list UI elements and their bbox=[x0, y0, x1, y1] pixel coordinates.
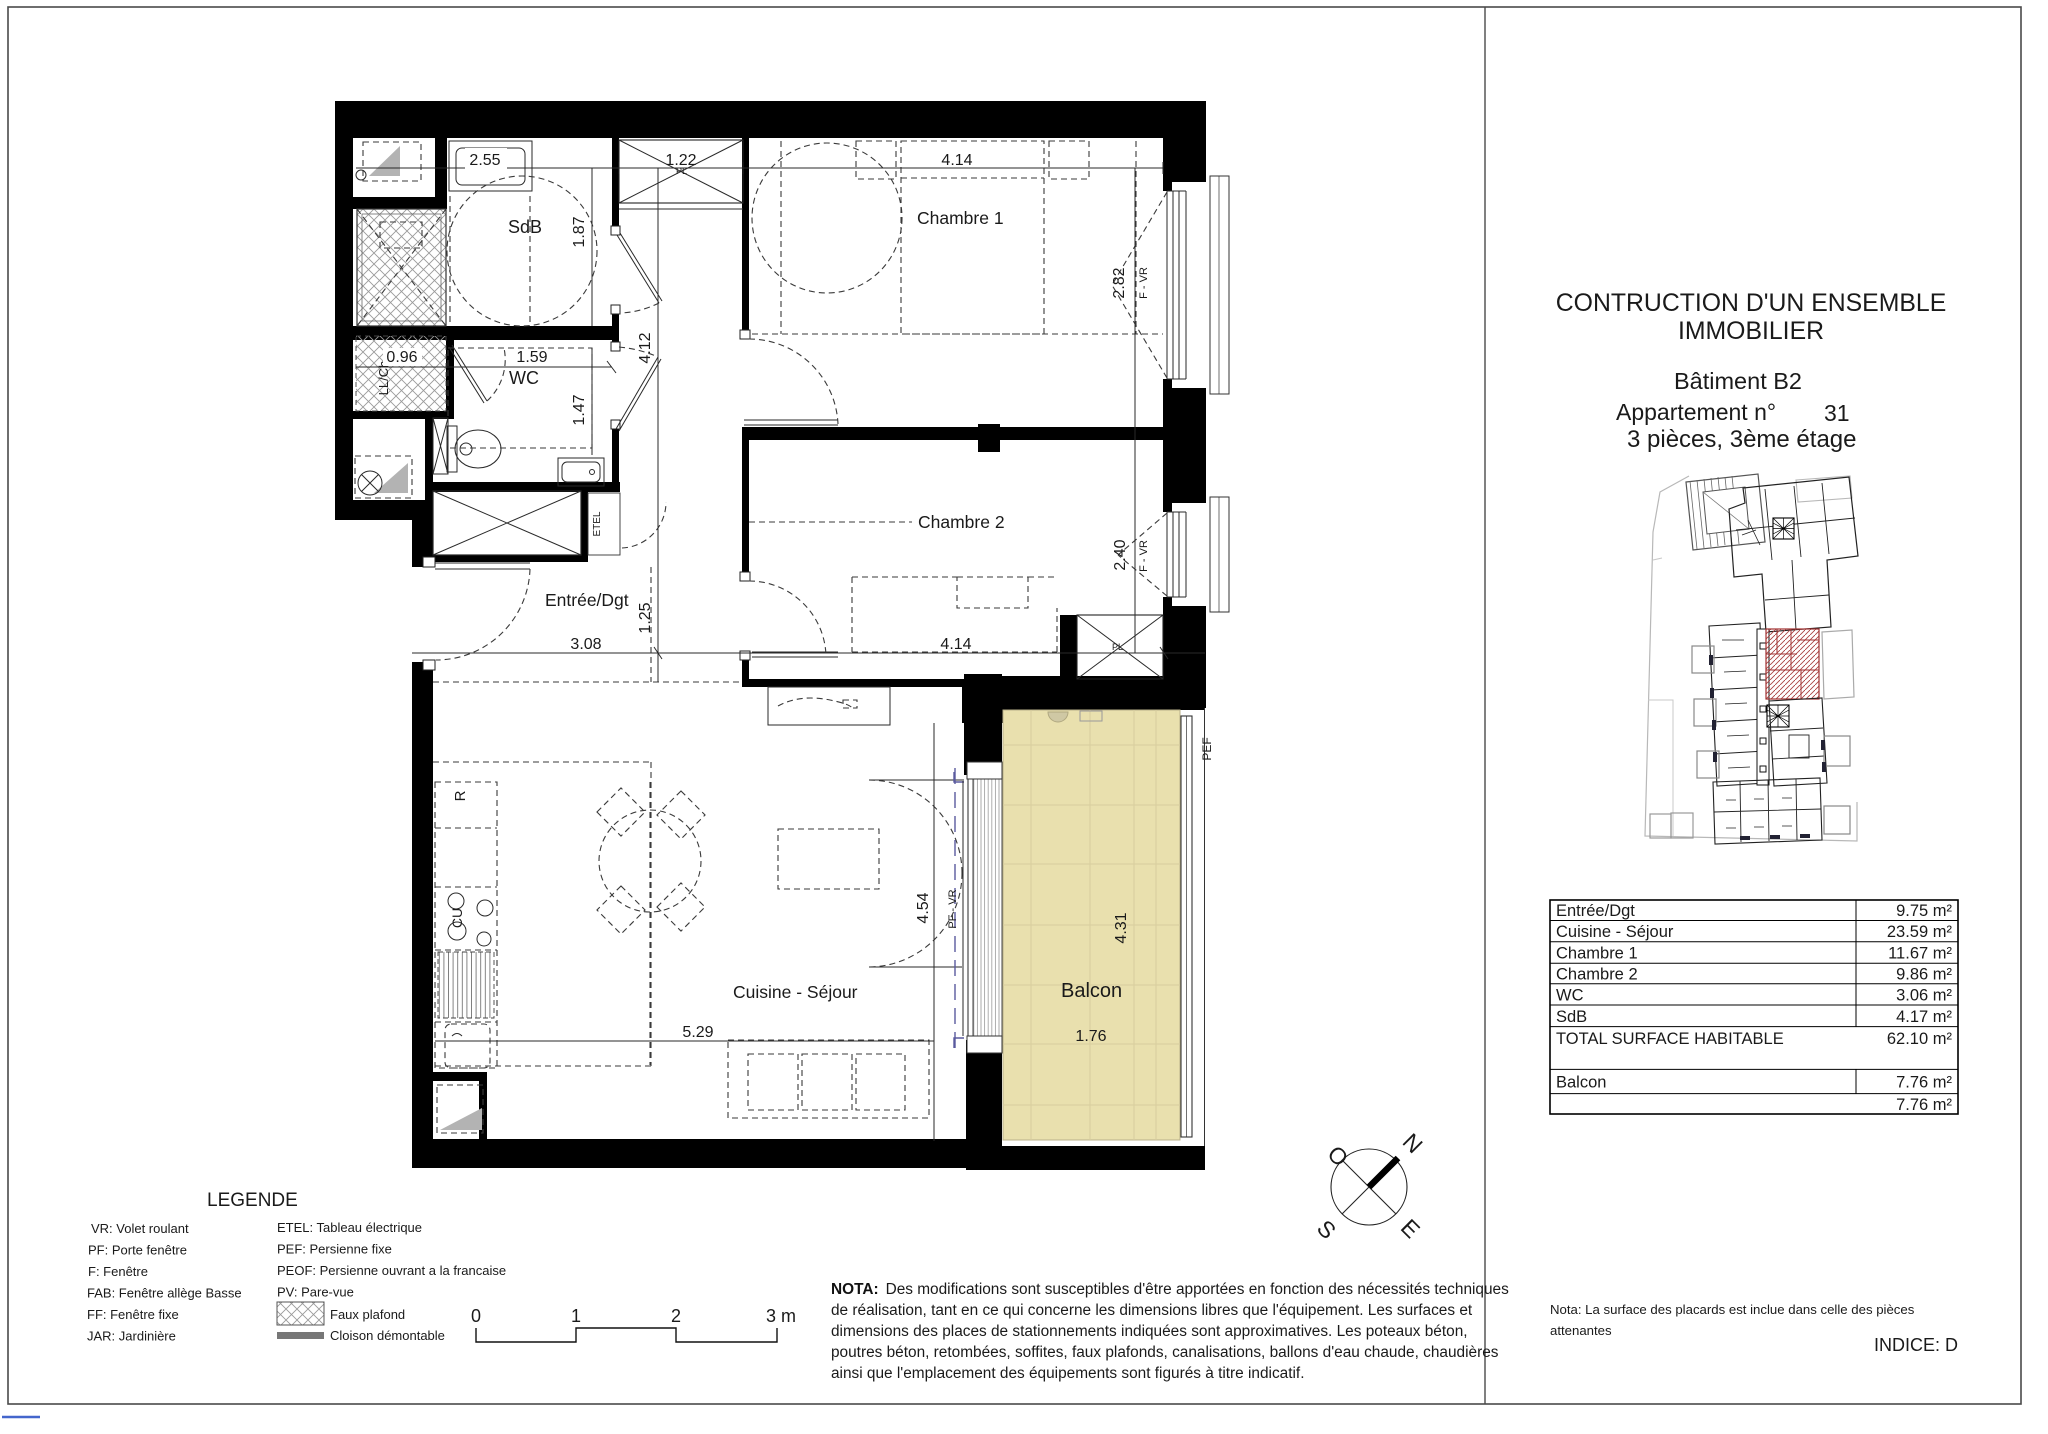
svg-text:1.25: 1.25 bbox=[637, 602, 654, 633]
svg-text:Balcon: Balcon bbox=[1556, 1074, 1606, 1092]
svg-text:de réalisation, tant en ce qui: de réalisation, tant en ce qui concerne … bbox=[831, 1302, 1473, 1319]
svg-text:NOTA:Des modifications sont su: NOTA:Des modifications sont susceptibles… bbox=[831, 1281, 1509, 1298]
svg-text:3 m: 3 m bbox=[766, 1306, 796, 1326]
svg-text:CONTRUCTION D'UN ENSEMBLE: CONTRUCTION D'UN ENSEMBLE bbox=[1556, 290, 1947, 317]
svg-text:Chambre 1: Chambre 1 bbox=[1556, 945, 1638, 963]
svg-text:TOTAL SURFACE HABITABLE: TOTAL SURFACE HABITABLE bbox=[1556, 1030, 1784, 1048]
svg-text:ainsi que l'emplacement des éq: ainsi que l'emplacement des équipements … bbox=[831, 1365, 1304, 1382]
svg-text:SdB: SdB bbox=[1556, 1008, 1587, 1026]
svg-text:1.47: 1.47 bbox=[571, 394, 588, 425]
svg-text:Entrée/Dgt: Entrée/Dgt bbox=[545, 590, 629, 610]
svg-text:PEOF: Persienne ouvrant a la f: PEOF: Persienne ouvrant a la francaise bbox=[277, 1263, 506, 1278]
svg-text:Entrée/Dgt: Entrée/Dgt bbox=[1556, 902, 1635, 920]
svg-text:4.14: 4.14 bbox=[940, 636, 971, 653]
svg-text:4.54: 4.54 bbox=[915, 892, 932, 923]
svg-text:3.06 m²: 3.06 m² bbox=[1896, 986, 1952, 1004]
svg-text:0: 0 bbox=[471, 1306, 481, 1326]
svg-text:1.87: 1.87 bbox=[571, 216, 588, 247]
svg-text:F - VR: F - VR bbox=[1138, 540, 1150, 572]
svg-text:9.86 m²: 9.86 m² bbox=[1896, 966, 1952, 984]
svg-text:poutres béton, retombées, soff: poutres béton, retombées, soffites, faux… bbox=[831, 1344, 1499, 1361]
svg-text:WC: WC bbox=[1556, 986, 1584, 1004]
svg-text:1: 1 bbox=[571, 1306, 581, 1326]
svg-text:9.75 m²: 9.75 m² bbox=[1896, 902, 1952, 920]
svg-text:62.10 m²: 62.10 m² bbox=[1887, 1030, 1953, 1048]
svg-text:2.40: 2.40 bbox=[1112, 539, 1129, 570]
svg-text:4.14: 4.14 bbox=[941, 152, 972, 169]
svg-text:Appartement n°: Appartement n° bbox=[1616, 399, 1776, 425]
svg-text:Balcon: Balcon bbox=[1061, 980, 1122, 1002]
svg-text:Chambre 2: Chambre 2 bbox=[1556, 966, 1638, 984]
svg-text:Nota: La surface des placards: Nota: La surface des placards est inclue… bbox=[1550, 1302, 1915, 1317]
svg-text:11.67 m²: 11.67 m² bbox=[1888, 945, 1952, 963]
svg-text:ETEL: Tableau électrique: ETEL: Tableau électrique bbox=[277, 1220, 422, 1235]
svg-text:1.59: 1.59 bbox=[516, 349, 547, 366]
svg-text:PEF: Persienne fixe: PEF: Persienne fixe bbox=[277, 1242, 392, 1257]
svg-text:7.76 m²: 7.76 m² bbox=[1896, 1096, 1952, 1114]
svg-text:WC: WC bbox=[509, 368, 539, 388]
svg-text:3 pièces, 3ème étage: 3 pièces, 3ème étage bbox=[1627, 426, 1857, 453]
svg-text:PV: Pare-vue: PV: Pare-vue bbox=[277, 1285, 354, 1300]
svg-text:Chambre 1: Chambre 1 bbox=[917, 208, 1004, 228]
svg-text:FF: Fenêtre fixe: FF: Fenêtre fixe bbox=[87, 1307, 179, 1322]
svg-text:1.76: 1.76 bbox=[1075, 1028, 1106, 1045]
svg-text:2.55: 2.55 bbox=[469, 152, 500, 169]
svg-text:Cuisine - Séjour: Cuisine - Séjour bbox=[1556, 923, 1674, 941]
svg-text:JAR: Jardinière: JAR: Jardinière bbox=[87, 1329, 176, 1344]
svg-text:Cuisine - Séjour: Cuisine - Séjour bbox=[733, 982, 858, 1002]
svg-text:PF - VR: PF - VR bbox=[947, 889, 959, 928]
svg-text:Bâtiment B2: Bâtiment B2 bbox=[1674, 368, 1802, 394]
svg-text:LEGENDE: LEGENDE bbox=[207, 1190, 298, 1211]
svg-text:1.22: 1.22 bbox=[665, 152, 696, 169]
svg-text:INDICE: D: INDICE: D bbox=[1874, 1335, 1958, 1355]
svg-text:attenantes: attenantes bbox=[1550, 1323, 1612, 1338]
svg-text:FAB: Fenêtre allège Basse: FAB: Fenêtre allège Basse bbox=[87, 1286, 242, 1301]
svg-text:2: 2 bbox=[671, 1306, 681, 1326]
svg-text:CU: CU bbox=[449, 908, 465, 928]
svg-text:R: R bbox=[452, 790, 469, 801]
svg-text:VR: Volet roulant: VR: Volet roulant bbox=[91, 1221, 189, 1236]
svg-text:2.82: 2.82 bbox=[1111, 267, 1128, 298]
svg-text:4.31: 4.31 bbox=[1113, 912, 1130, 943]
svg-text:3.08: 3.08 bbox=[570, 636, 601, 653]
svg-text:Faux plafond: Faux plafond bbox=[330, 1307, 405, 1322]
svg-text:0.96: 0.96 bbox=[386, 349, 417, 366]
svg-text:F - VR: F - VR bbox=[1138, 267, 1150, 299]
svg-text:23.59 m²: 23.59 m² bbox=[1887, 923, 1953, 941]
svg-text:31: 31 bbox=[1824, 400, 1850, 426]
svg-text:IMMOBILIER: IMMOBILIER bbox=[1678, 318, 1824, 345]
svg-text:PL: PL bbox=[1112, 642, 1123, 652]
svg-text:PF: Porte fenêtre: PF: Porte fenêtre bbox=[88, 1243, 187, 1258]
svg-text:F: Fenêtre: F: Fenêtre bbox=[88, 1264, 148, 1279]
svg-text:Chambre 2: Chambre 2 bbox=[918, 512, 1005, 532]
svg-text:dimensions des places de stati: dimensions des places de stationnements … bbox=[831, 1323, 1468, 1340]
svg-text:PEF: PEF bbox=[1200, 737, 1214, 760]
svg-text:5.29: 5.29 bbox=[682, 1024, 713, 1041]
svg-text:SdB: SdB bbox=[508, 217, 542, 237]
svg-text:7.76 m²: 7.76 m² bbox=[1896, 1074, 1952, 1092]
svg-text:4.12: 4.12 bbox=[637, 332, 654, 363]
svg-text:ETEL: ETEL bbox=[592, 511, 603, 536]
svg-text:4.17 m²: 4.17 m² bbox=[1896, 1008, 1952, 1026]
svg-text:Cloison démontable: Cloison démontable bbox=[330, 1328, 445, 1343]
